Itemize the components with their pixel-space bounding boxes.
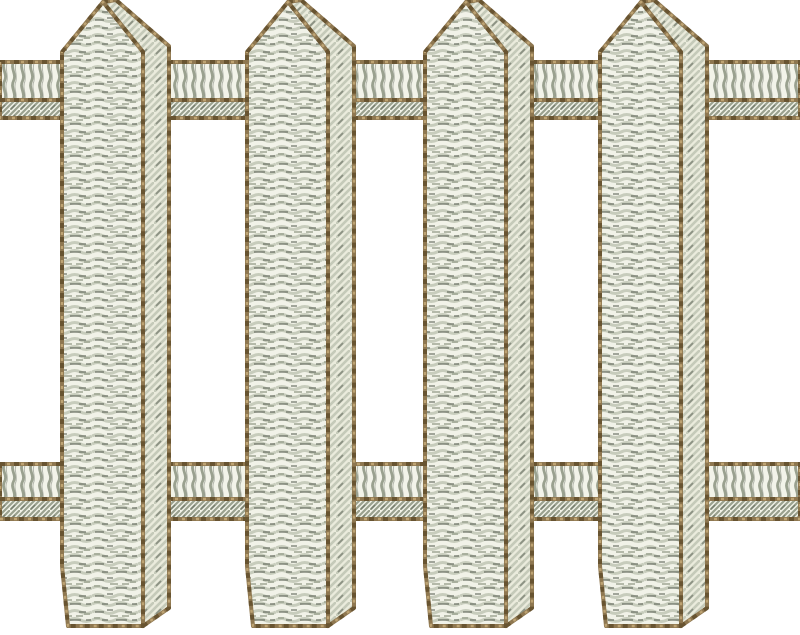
- picket-2: [247, 0, 354, 626]
- picket-1-front-face: [62, 2, 143, 626]
- embroidery-fence-design: [0, 0, 800, 635]
- picket-2-front-face: [247, 2, 328, 626]
- picket-1: [62, 0, 169, 626]
- picket-3-front-face: [425, 2, 506, 626]
- picket-3: [425, 0, 532, 626]
- fence-graphic: [0, 0, 800, 635]
- picket-4: [600, 0, 707, 626]
- picket-4-front-face: [600, 2, 681, 626]
